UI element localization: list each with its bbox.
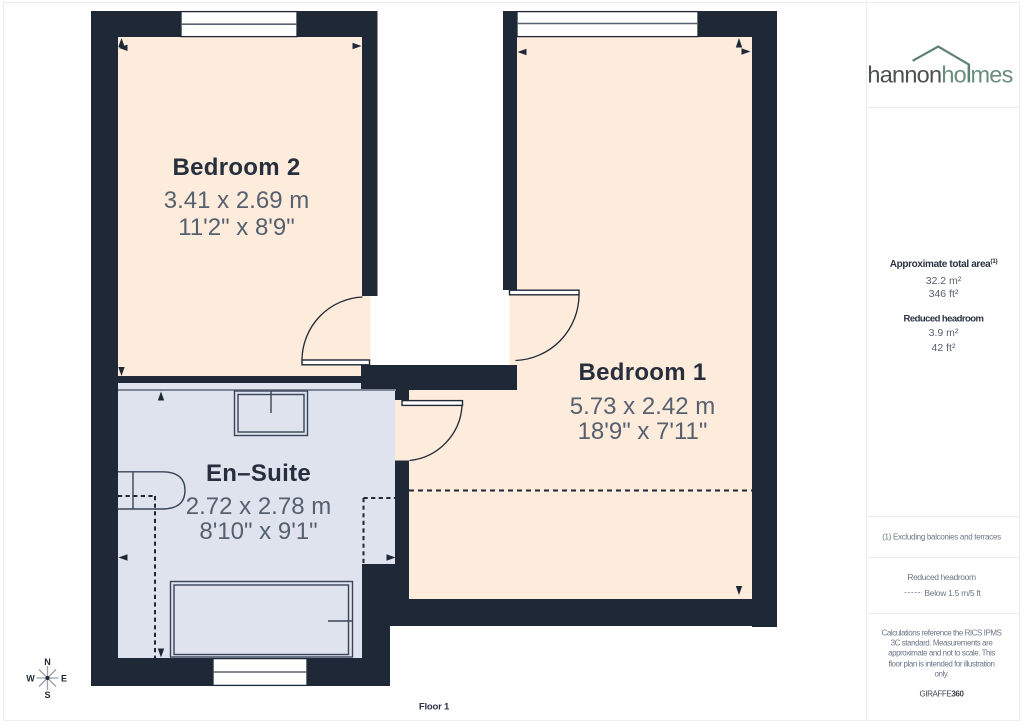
svg-text:W: W [26, 673, 35, 683]
svg-text:S: S [44, 690, 50, 700]
svg-text:E: E [61, 673, 67, 683]
svg-text:N: N [44, 657, 51, 667]
